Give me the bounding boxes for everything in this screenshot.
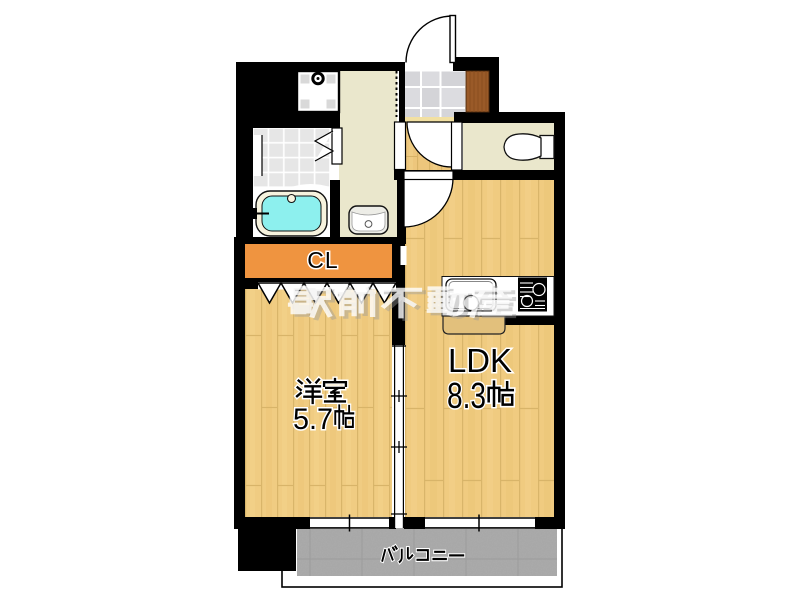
svg-text:LDK: LDK xyxy=(448,342,512,379)
svg-text:5.7: 5.7 xyxy=(293,403,333,436)
svg-text:CL: CL xyxy=(307,247,338,273)
svg-text:8.3: 8.3 xyxy=(447,375,486,416)
